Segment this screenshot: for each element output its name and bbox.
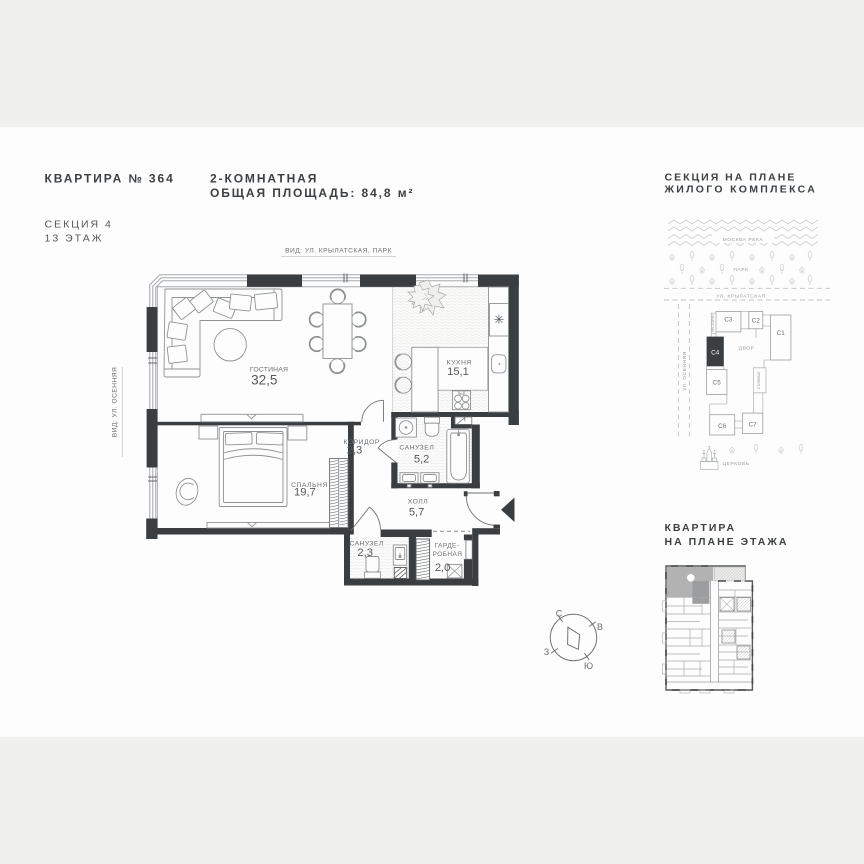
- svg-text:✳: ✳: [494, 312, 505, 327]
- svg-text:СЕКЦИЯ 4: СЕКЦИЯ 4: [45, 219, 113, 231]
- svg-text:ХОЛЛ: ХОЛЛ: [408, 498, 428, 505]
- svg-text:5,7: 5,7: [409, 506, 425, 518]
- svg-text:13 ЭТАЖ: 13 ЭТАЖ: [45, 233, 104, 245]
- svg-text:ЦЕРКОВЬ: ЦЕРКОВЬ: [723, 461, 750, 467]
- svg-text:15,1: 15,1: [447, 366, 469, 378]
- svg-text:2,3: 2,3: [357, 547, 373, 559]
- svg-text:С3: С3: [724, 317, 733, 324]
- svg-text:УЛ. КРЫЛАТСКАЯ: УЛ. КРЫЛАТСКАЯ: [716, 293, 765, 299]
- svg-text:32,5: 32,5: [251, 373, 277, 388]
- svg-text:С5: С5: [713, 380, 722, 387]
- svg-text:СЕКЦИЯ НА ПЛАНЕ: СЕКЦИЯ НА ПЛАНЕ: [665, 172, 797, 184]
- svg-text:С7: С7: [749, 422, 758, 429]
- svg-text:КВАРТИРА: КВАРТИРА: [665, 522, 737, 534]
- svg-text:19,7: 19,7: [294, 486, 316, 498]
- svg-text:НА ПЛАНЕ ЭТАЖА: НА ПЛАНЕ ЭТАЖА: [665, 536, 789, 548]
- svg-text:КВАРТИРА № 364: КВАРТИРА № 364: [45, 172, 175, 186]
- svg-text:С4: С4: [711, 350, 720, 357]
- svg-text:2,3: 2,3: [347, 444, 363, 456]
- svg-text:РЕСТОРАН: РЕСТОРАН: [711, 314, 715, 333]
- svg-text:С6: С6: [718, 423, 727, 430]
- svg-text:ВИД: УЛ. КРЫЛАТСКАЯ, ПАРК: ВИД: УЛ. КРЫЛАТСКАЯ, ПАРК: [285, 247, 392, 254]
- svg-text:ОБЩАЯ ПЛОЩАДЬ: 84,8 м²: ОБЩАЯ ПЛОЩАДЬ: 84,8 м²: [210, 186, 414, 200]
- svg-text:Ю: Ю: [584, 661, 593, 671]
- svg-text:З: З: [544, 647, 549, 657]
- svg-text:САНУЗЕЛ: САНУЗЕЛ: [399, 445, 434, 452]
- svg-text:ДВОР: ДВОР: [739, 346, 755, 352]
- svg-text:В: В: [597, 622, 603, 632]
- svg-text:СТИЛОБАТ: СТИЛОБАТ: [757, 371, 761, 389]
- svg-text:С1: С1: [777, 330, 786, 337]
- svg-text:ПАРК: ПАРК: [733, 267, 748, 273]
- svg-text:МОСКВА РЕКА: МОСКВА РЕКА: [723, 237, 764, 243]
- svg-text:2,0: 2,0: [435, 562, 451, 574]
- svg-text:С2: С2: [752, 318, 761, 325]
- svg-text:УЛ. ОСЕННЯЯ: УЛ. ОСЕННЯЯ: [682, 351, 688, 391]
- svg-text:ЖИЛОГО КОМПЛЕКСА: ЖИЛОГО КОМПЛЕКСА: [664, 184, 818, 196]
- svg-text:2-КОМНАТНАЯ: 2-КОМНАТНАЯ: [210, 172, 318, 186]
- svg-text:ВИД: УЛ. ОСЕННЯЯ: ВИД: УЛ. ОСЕННЯЯ: [112, 367, 119, 438]
- svg-text:С: С: [556, 609, 563, 619]
- svg-text:РОБНАЯ: РОБНАЯ: [433, 551, 463, 558]
- svg-text:5,2: 5,2: [414, 453, 430, 465]
- svg-text:ГАРДЕ-: ГАРДЕ-: [435, 543, 460, 550]
